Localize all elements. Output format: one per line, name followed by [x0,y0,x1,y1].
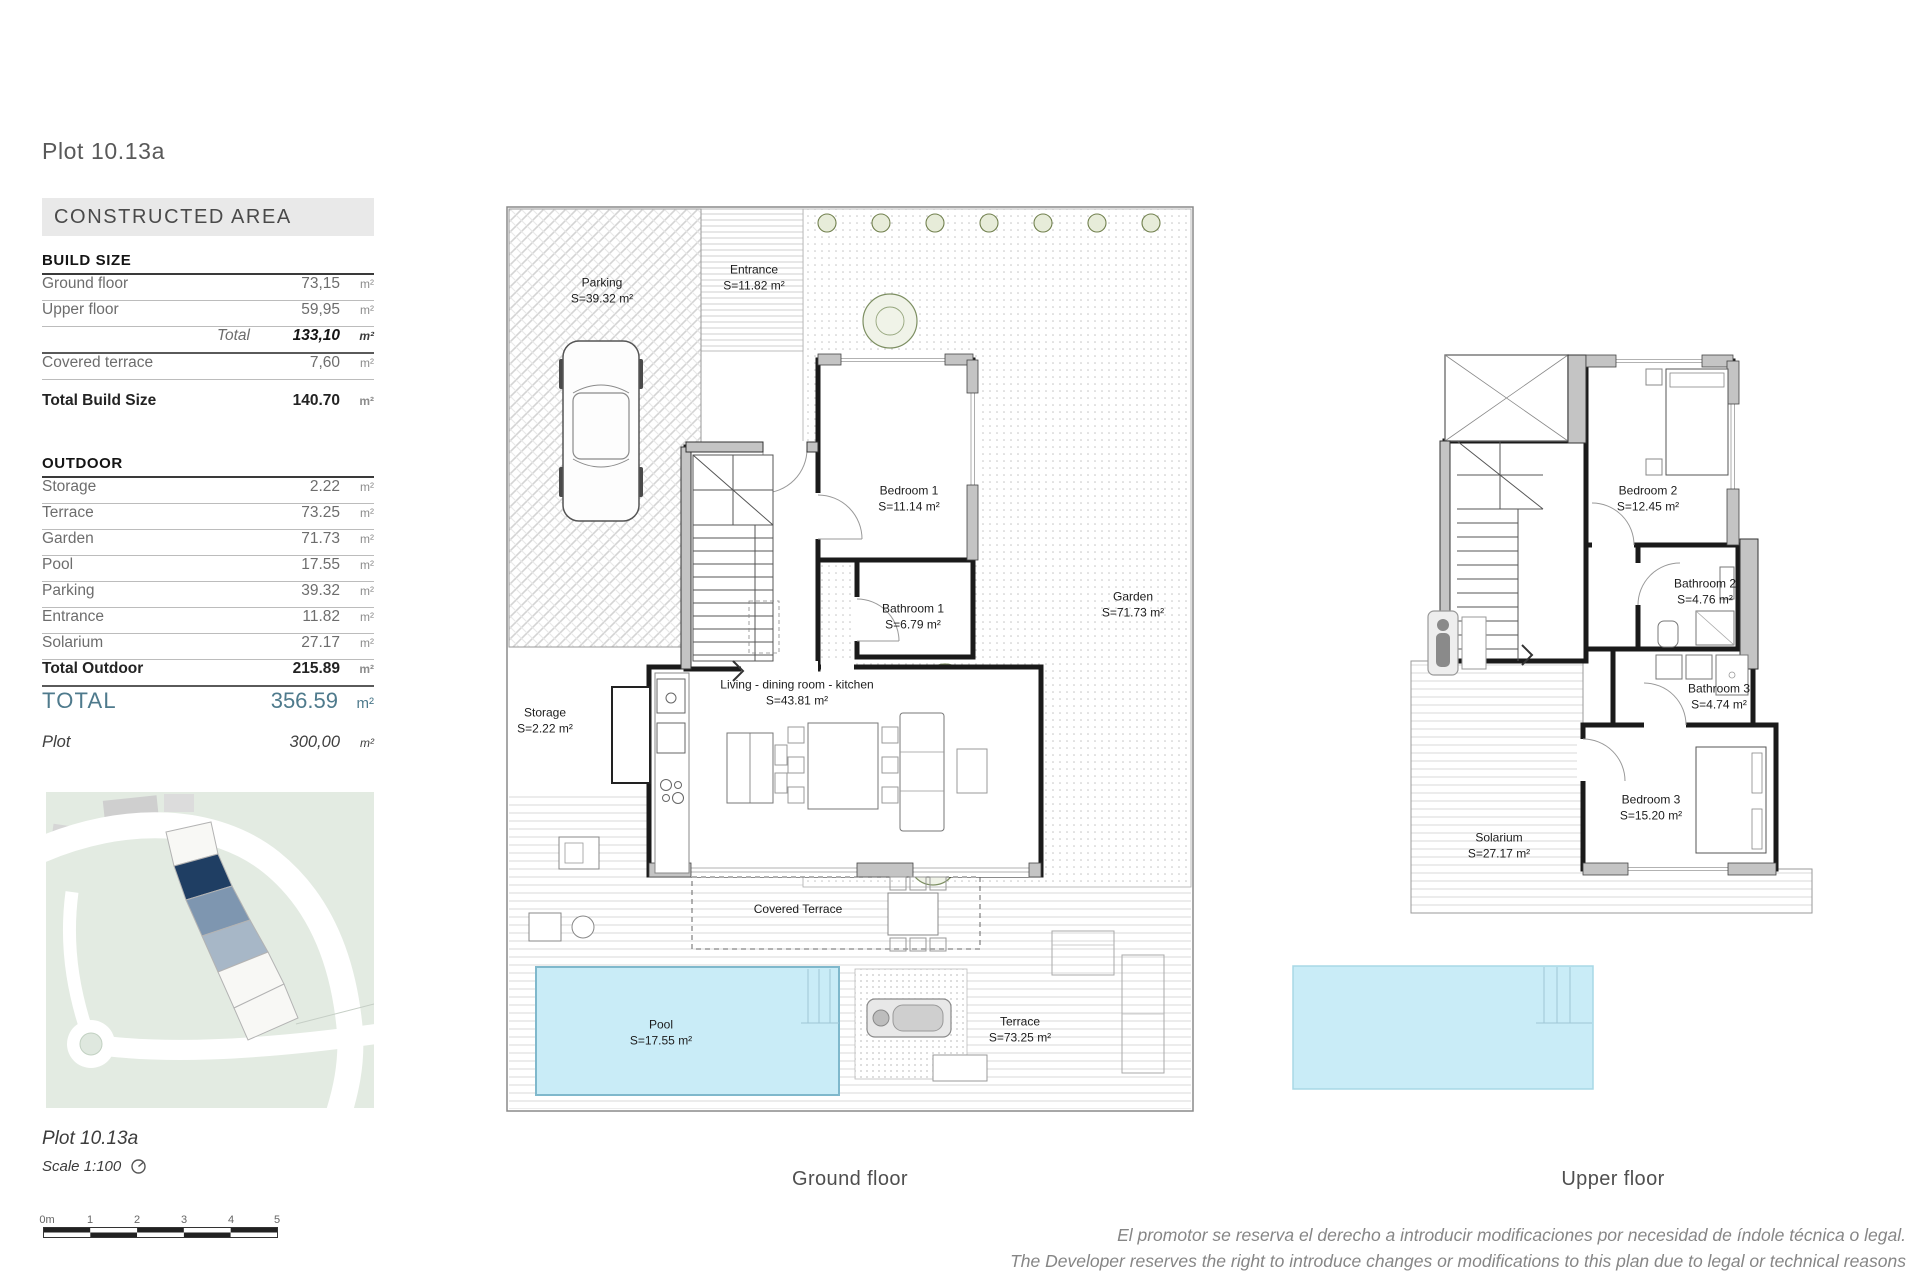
constructed-area-banner: CONSTRUCTED AREA [42,198,374,236]
row-unit: m² [340,356,374,370]
table-row: Solarium 27.17 m² [42,634,374,660]
row-unit: m² [340,662,374,676]
room-label-bedroom3: Bedroom 3 S=15.20 m² [1620,792,1682,823]
table-row: Upper floor 59,95 m² [42,301,374,327]
room-label-bedroom1: Bedroom 1 S=11.14 m² [878,483,939,514]
row-unit: m² [340,277,374,291]
row-label: Entrance [42,608,268,626]
row-label: Solarium [42,634,268,652]
room-label-terrace: Terrace S=73.25 m² [989,1014,1051,1045]
room-label-garden: Garden S=71.73 m² [1102,589,1164,620]
scale-tick: 5 [274,1214,280,1226]
row-label: Total Build Size [42,392,268,410]
orientation-icon [130,1158,147,1175]
scale-tick: 3 [181,1214,187,1226]
grand-total-value: 356.59 [271,688,338,714]
row-label: Terrace [42,504,268,522]
row-label: Total [42,327,268,345]
row-unit: m² [340,736,374,750]
row-value: 17.55 [268,556,340,574]
row-unit: m² [340,532,374,546]
disclaimer-es: El promotor se reserva el derecho a intr… [1010,1222,1906,1248]
build-size-table: BUILD SIZE Ground floor 73,15 m² Upper f… [42,252,374,417]
upper-floor-plan: Bedroom 2 S=12.45 m² Bathroom 2 S=4.76 m… [1408,349,1818,929]
footer-plot-label: Plot 10.13a [42,1128,138,1150]
page-title: Plot 10.13a [42,138,165,165]
room-label-bedroom2: Bedroom 2 S=12.45 m² [1617,483,1679,514]
build-total-row: Total 133,10 m² [42,327,374,354]
row-label: Parking [42,582,268,600]
plot-size-row: Plot 300,00 m² [42,733,374,752]
build-size-heading: BUILD SIZE [42,252,374,275]
site-location-map [46,792,374,1108]
scale-bar: 0m 1 2 3 4 5 [43,1214,279,1240]
row-label: Garden [42,530,268,548]
row-value: 2.22 [268,478,340,496]
room-label-covered-terrace: Covered Terrace [754,902,843,918]
row-value: 140.70 [268,392,340,410]
row-unit: m² [340,394,374,408]
row-value: 71.73 [268,530,340,548]
row-label: Storage [42,478,268,496]
row-value: 215.89 [268,660,340,678]
grand-total-unit: m² [338,695,374,712]
row-value: 73.25 [268,504,340,522]
scale-bar-graphic [43,1227,279,1238]
row-label: Upper floor [42,301,268,319]
ground-floor-caption: Ground floor [505,1168,1195,1191]
total-build-size-row: Total Build Size 140.70 m² [42,392,374,417]
row-value: 39.32 [268,582,340,600]
scale-tick: 4 [228,1214,234,1226]
row-label: Ground floor [42,275,268,293]
row-value: 11.82 [268,608,340,626]
row-label: Plot [42,733,268,752]
row-unit: m² [340,480,374,494]
room-label-living: Living - dining room - kitchen S=43.81 m… [720,677,873,708]
footer-scale: Scale 1:100 [42,1158,147,1175]
room-label-entrance: Entrance S=11.82 m² [723,262,784,293]
row-unit: m² [340,610,374,624]
scale-tick: 1 [87,1214,93,1226]
row-value: 59,95 [268,301,340,319]
row-unit: m² [340,636,374,650]
table-row: Covered terrace 7,60 m² [42,354,374,380]
upper-pool-outline [1292,965,1594,1090]
table-row: Ground floor 73,15 m² [42,275,374,301]
row-value: 300,00 [268,733,340,752]
room-label-solarium: Solarium S=27.17 m² [1468,830,1530,861]
legal-disclaimer: El promotor se reserva el derecho a intr… [1010,1222,1906,1275]
row-unit: m² [340,303,374,317]
row-unit: m² [340,558,374,572]
plan-sheet: Plot 10.13a CONSTRUCTED AREA BUILD SIZE … [0,0,1920,1280]
ground-floor-drawing [505,193,1195,1123]
ground-floor-plan: Parking S=39.32 m² Entrance S=11.82 m² G… [505,193,1195,1123]
upper-pool-graphic [1292,965,1594,1090]
table-row: Garden 71.73 m² [42,530,374,556]
grand-total-label: TOTAL [42,688,271,714]
table-row: Entrance 11.82 m² [42,608,374,634]
row-label: Covered terrace [42,354,268,372]
upper-floor-caption: Upper floor [1408,1168,1818,1191]
outdoor-heading: OUTDOOR [42,455,374,478]
table-row: Pool 17.55 m² [42,556,374,582]
grand-total-row: TOTAL 356.59 m² [42,688,374,714]
row-value: 27.17 [268,634,340,652]
disclaimer-en: The Developer reserves the right to intr… [1010,1248,1906,1274]
row-unit: m² [340,329,374,343]
scale-label: Scale 1:100 [42,1158,121,1175]
row-label: Pool [42,556,268,574]
row-value: 7,60 [268,354,340,372]
table-row: Parking 39.32 m² [42,582,374,608]
scale-bar-ticks: 0m 1 2 3 4 5 [43,1214,279,1227]
table-row: Terrace 73.25 m² [42,504,374,530]
scale-tick: 0m [39,1214,54,1226]
row-value: 133,10 [268,327,340,345]
total-outdoor-row: Total Outdoor 215.89 m² [42,660,374,687]
room-label-pool: Pool S=17.55 m² [630,1017,692,1048]
outdoor-table: OUTDOOR Storage 2.22 m² Terrace 73.25 m²… [42,455,374,687]
row-unit: m² [340,506,374,520]
row-value: 73,15 [268,275,340,293]
room-label-parking: Parking S=39.32 m² [571,275,633,306]
site-map-graphic [46,792,374,1108]
room-label-bathroom3: Bathroom 3 S=4.74 m² [1688,681,1750,712]
row-label: Total Outdoor [42,660,268,678]
room-label-bathroom2: Bathroom 2 S=4.76 m² [1674,576,1736,607]
room-label-storage: Storage S=2.22 m² [517,705,573,736]
room-label-bathroom1: Bathroom 1 S=6.79 m² [882,601,944,632]
table-row: Storage 2.22 m² [42,478,374,504]
scale-tick: 2 [134,1214,140,1226]
row-unit: m² [340,584,374,598]
